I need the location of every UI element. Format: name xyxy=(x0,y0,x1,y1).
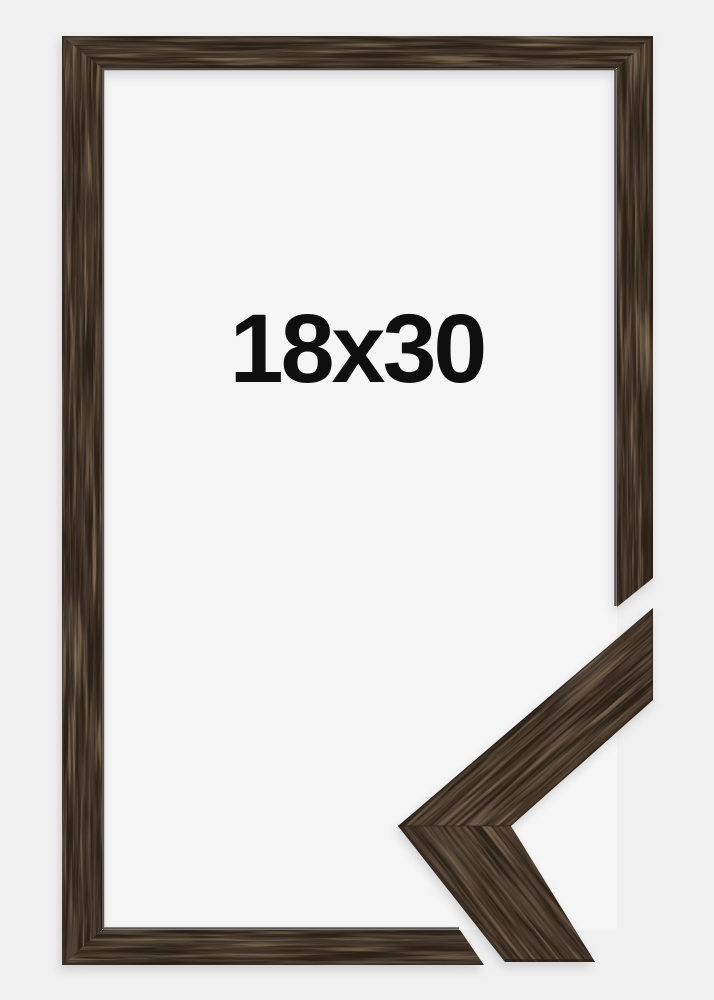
product-image: 18x30 xyxy=(0,0,714,1000)
frame-left-bar xyxy=(55,30,109,972)
frame-opening xyxy=(102,68,617,930)
frame-illustration xyxy=(0,0,714,1000)
frame-size-label: 18x30 xyxy=(0,300,714,397)
